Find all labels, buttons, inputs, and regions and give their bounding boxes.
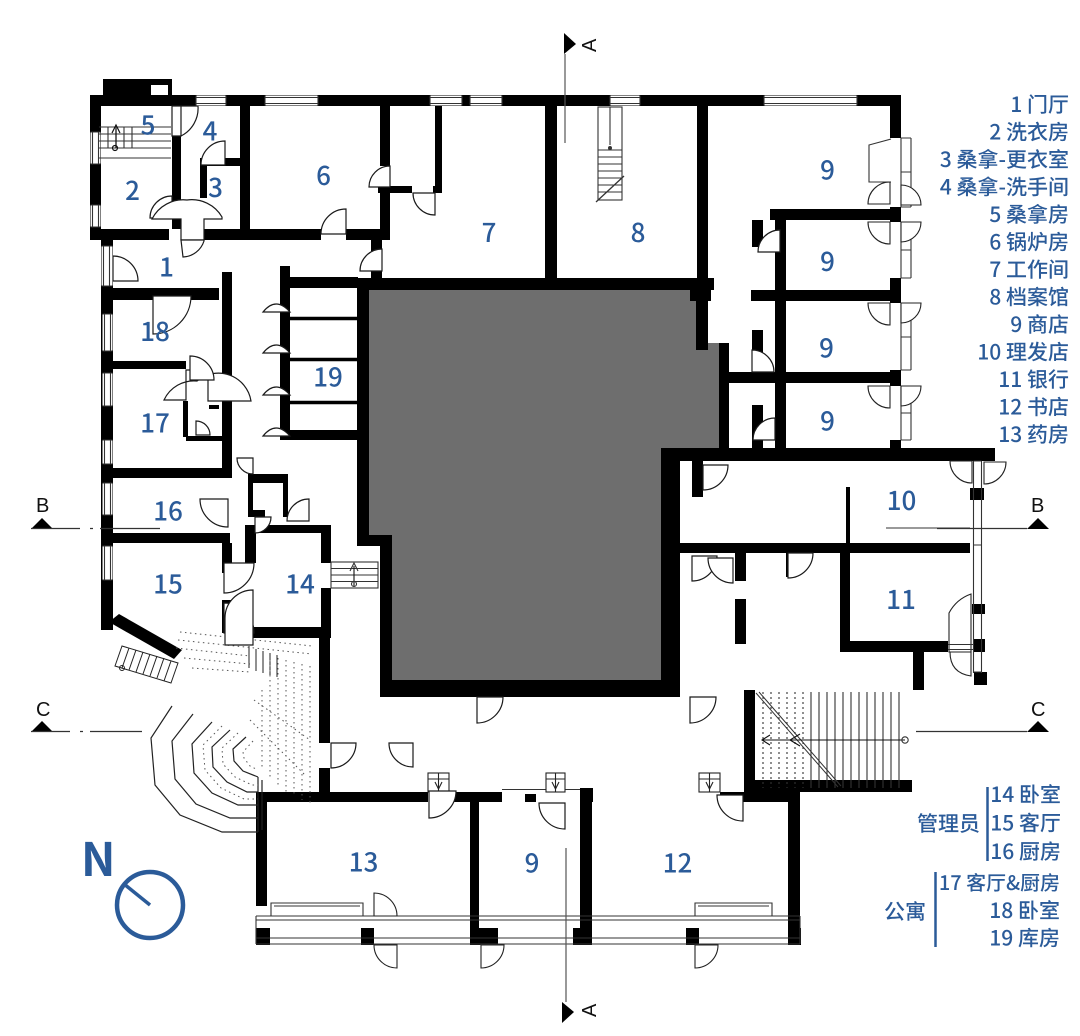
svg-text:C: C <box>1031 699 1045 721</box>
svg-text:A: A <box>579 1003 601 1017</box>
svg-text:C: C <box>36 699 50 721</box>
svg-text:B: B <box>1031 495 1044 517</box>
svg-text:B: B <box>36 495 49 517</box>
svg-text:A: A <box>579 38 601 52</box>
